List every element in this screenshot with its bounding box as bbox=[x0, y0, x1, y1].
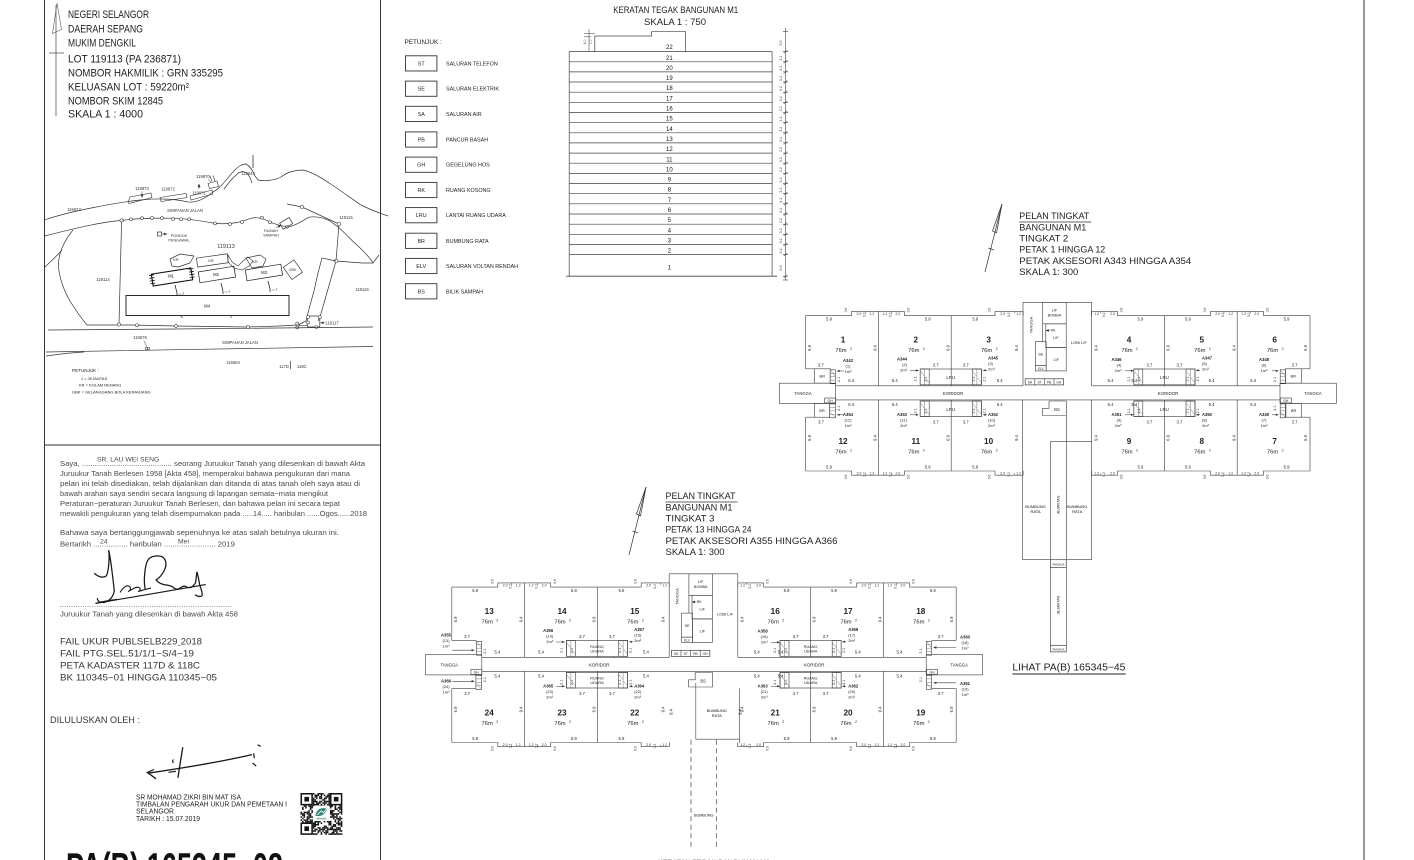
svg-text:24: 24 bbox=[485, 709, 495, 718]
svg-text:2.1: 2.1 bbox=[924, 408, 928, 413]
svg-text:5.9: 5.9 bbox=[618, 736, 624, 741]
svg-text:0.2: 0.2 bbox=[535, 744, 539, 749]
svg-text:2: 2 bbox=[855, 619, 857, 623]
svg-text:TINGKAT 3: TINGKAT 3 bbox=[666, 514, 715, 524]
svg-text:2: 2 bbox=[569, 619, 571, 623]
svg-text:3.7: 3.7 bbox=[933, 363, 939, 368]
svg-text:5.4: 5.4 bbox=[1108, 402, 1114, 407]
svg-text:5.9: 5.9 bbox=[972, 317, 978, 322]
svg-text:76m: 76m bbox=[768, 721, 779, 727]
svg-text:(18): (18) bbox=[961, 640, 969, 645]
svg-text:76m: 76m bbox=[840, 721, 851, 727]
svg-text:2m³: 2m³ bbox=[988, 423, 996, 428]
svg-text:2.1: 2.1 bbox=[1196, 408, 1200, 413]
svg-text:BR: BR bbox=[417, 239, 425, 245]
svg-text:SKALA 1: 300: SKALA 1: 300 bbox=[1019, 267, 1078, 277]
svg-text:LIF: LIF bbox=[1053, 336, 1059, 340]
svg-text:BUMBUNG RATA: BUMBUNG RATA bbox=[446, 239, 489, 245]
svg-text:Juruukur Tanah yang dilesen: Juruukur Tanah yang dilesenkan di bawah … bbox=[60, 610, 238, 619]
svg-text:TANGGA: TANGGA bbox=[1052, 647, 1064, 651]
svg-text:6.9: 6.9 bbox=[945, 434, 950, 440]
svg-text:0.2: 0.2 bbox=[893, 584, 897, 589]
svg-text:2.1: 2.1 bbox=[1186, 408, 1190, 413]
svg-text:J: J bbox=[228, 290, 230, 294]
svg-text:0.6: 0.6 bbox=[1203, 308, 1207, 313]
svg-text:1.2: 1.2 bbox=[662, 743, 667, 747]
svg-text:9.4: 9.4 bbox=[669, 708, 674, 714]
svg-text:5.9: 5.9 bbox=[571, 588, 577, 593]
svg-text:2.1: 2.1 bbox=[919, 648, 923, 653]
svg-text:3.7: 3.7 bbox=[793, 634, 799, 639]
svg-text:5: 5 bbox=[1200, 336, 1205, 345]
svg-text:2: 2 bbox=[1282, 449, 1284, 453]
svg-text:6.9: 6.9 bbox=[453, 706, 458, 712]
svg-text:1: 1 bbox=[841, 336, 846, 345]
svg-text:3.2: 3.2 bbox=[779, 208, 783, 213]
svg-text:3.2: 3.2 bbox=[779, 157, 783, 162]
svg-text:0.6: 0.6 bbox=[490, 746, 494, 751]
svg-text:5.4: 5.4 bbox=[538, 650, 544, 655]
svg-text:2.0: 2.0 bbox=[900, 583, 905, 587]
svg-text:7: 7 bbox=[1272, 437, 1277, 446]
svg-text:GH: GH bbox=[474, 670, 480, 674]
svg-text:119117: 119117 bbox=[325, 321, 339, 326]
svg-text:2: 2 bbox=[1136, 347, 1138, 351]
svg-text:2.1: 2.1 bbox=[560, 680, 564, 685]
svg-text:0.2: 0.2 bbox=[653, 584, 657, 589]
svg-text:A355: A355 bbox=[441, 633, 452, 638]
svg-text:2: 2 bbox=[923, 449, 925, 453]
svg-text:3.2: 3.2 bbox=[779, 147, 783, 152]
svg-text:2m³: 2m³ bbox=[1202, 367, 1210, 372]
svg-text:TANGGA: TANGGA bbox=[1304, 391, 1322, 396]
svg-text:0.2: 0.2 bbox=[509, 584, 513, 589]
svg-text:2.1: 2.1 bbox=[783, 680, 787, 685]
svg-text:5.9: 5.9 bbox=[831, 736, 837, 741]
svg-text:0.2: 0.2 bbox=[653, 744, 657, 749]
svg-text:RUANG: RUANG bbox=[804, 677, 818, 681]
svg-text:(20): (20) bbox=[848, 689, 856, 694]
svg-text:6.9: 6.9 bbox=[945, 344, 950, 350]
svg-text:JEJANTAS: JEJANTAS bbox=[1057, 495, 1061, 514]
svg-text:GH: GH bbox=[417, 163, 425, 169]
svg-text:A345: A345 bbox=[988, 356, 999, 361]
svg-text:1.2: 1.2 bbox=[1094, 472, 1099, 476]
svg-text:KR: KR bbox=[208, 259, 214, 263]
svg-text:3.7: 3.7 bbox=[938, 634, 944, 639]
svg-text:76m: 76m bbox=[835, 348, 846, 354]
svg-text:SALURAN TELEFON: SALURAN TELEFON bbox=[446, 61, 498, 67]
svg-text:(24): (24) bbox=[442, 684, 450, 689]
svg-text:RK: RK bbox=[417, 188, 425, 194]
svg-text:BS: BS bbox=[1054, 407, 1060, 412]
svg-text:1.2: 1.2 bbox=[1241, 312, 1246, 316]
svg-text:9.4: 9.4 bbox=[1014, 434, 1019, 440]
svg-text:M2: M2 bbox=[213, 272, 219, 277]
svg-text:3.7: 3.7 bbox=[1146, 363, 1152, 368]
svg-text:6: 6 bbox=[1272, 336, 1277, 345]
svg-text:1m³: 1m³ bbox=[845, 369, 853, 374]
svg-text:2.0: 2.0 bbox=[1215, 312, 1220, 316]
svg-text:A359: A359 bbox=[848, 627, 859, 632]
svg-text:20: 20 bbox=[843, 709, 853, 718]
svg-text:LOBI LIF: LOBI LIF bbox=[717, 612, 734, 617]
svg-text:3.7: 3.7 bbox=[933, 419, 939, 424]
svg-text:A354: A354 bbox=[843, 412, 854, 417]
svg-text:2.1: 2.1 bbox=[618, 648, 622, 653]
svg-text:119116: 119116 bbox=[355, 287, 369, 292]
svg-text:TANGGA: TANGGA bbox=[1029, 316, 1034, 333]
svg-text:0.2: 0.2 bbox=[862, 312, 866, 317]
svg-text:0.6: 0.6 bbox=[987, 308, 991, 313]
svg-text:PETAK AKSESORI A343 HINGGA: PETAK AKSESORI A343 HINGGA A354 bbox=[1019, 256, 1191, 266]
svg-text:5.4: 5.4 bbox=[494, 673, 500, 678]
svg-text:5.4: 5.4 bbox=[1131, 378, 1137, 383]
svg-text:2.0: 2.0 bbox=[646, 743, 651, 747]
svg-text:9.4: 9.4 bbox=[878, 616, 883, 622]
svg-text:3.7: 3.7 bbox=[609, 634, 615, 639]
svg-text:2.1: 2.1 bbox=[483, 677, 487, 682]
svg-text:A362: A362 bbox=[848, 684, 859, 689]
svg-text:2.1: 2.1 bbox=[982, 408, 986, 413]
svg-text:ELV: ELV bbox=[684, 639, 691, 643]
svg-text:LRU: LRU bbox=[946, 407, 955, 412]
svg-text:M4: M4 bbox=[204, 304, 210, 309]
svg-text:PB: PB bbox=[418, 138, 426, 144]
svg-text:LRU: LRU bbox=[1160, 407, 1169, 412]
svg-text:19: 19 bbox=[666, 76, 673, 82]
svg-text:1.2: 1.2 bbox=[662, 583, 667, 587]
svg-text:9.4: 9.4 bbox=[519, 706, 524, 712]
svg-text:9.4: 9.4 bbox=[1231, 344, 1236, 350]
svg-text:5.4: 5.4 bbox=[997, 378, 1003, 383]
svg-text:5.4: 5.4 bbox=[848, 402, 854, 407]
svg-text:A351: A351 bbox=[1111, 412, 1122, 417]
svg-text:5.4: 5.4 bbox=[643, 673, 649, 678]
svg-text:1m³: 1m³ bbox=[443, 690, 451, 695]
svg-text:2.1: 2.1 bbox=[982, 376, 986, 381]
svg-text:2: 2 bbox=[782, 720, 784, 724]
svg-text:119973: 119973 bbox=[135, 186, 149, 191]
svg-text:2.0: 2.0 bbox=[646, 583, 651, 587]
svg-text:118C: 118C bbox=[297, 364, 307, 369]
svg-text:MUKIM DENGKIL: MUKIM DENGKIL bbox=[68, 38, 136, 50]
svg-text:KERATAN TEGAK BANGUNAN M1: KERATAN TEGAK BANGUNAN M1 bbox=[613, 5, 738, 15]
svg-text:PETA KADASTER 117D & 118C: PETA KADASTER 117D & 118C bbox=[60, 660, 201, 670]
svg-text:2: 2 bbox=[782, 619, 784, 623]
svg-text:SE: SE bbox=[418, 87, 426, 93]
svg-text:119971: 119971 bbox=[192, 191, 206, 196]
svg-text:6.9: 6.9 bbox=[812, 706, 817, 712]
svg-text:5.4: 5.4 bbox=[754, 673, 760, 678]
svg-text:A360: A360 bbox=[960, 634, 971, 639]
svg-text:LIF: LIF bbox=[1052, 309, 1058, 313]
svg-text:3.2: 3.2 bbox=[779, 198, 783, 203]
svg-text:12: 12 bbox=[666, 147, 673, 153]
svg-text:(11): (11) bbox=[900, 418, 907, 423]
svg-text:RUMAH: RUMAH bbox=[264, 229, 278, 233]
svg-text:2.0: 2.0 bbox=[756, 743, 761, 747]
svg-text:(21): (21) bbox=[761, 689, 769, 694]
svg-text:2m³: 2m³ bbox=[761, 640, 769, 645]
svg-text:5.4: 5.4 bbox=[494, 650, 500, 655]
svg-text:GH: GH bbox=[828, 399, 834, 403]
svg-text:3.2: 3.2 bbox=[779, 106, 783, 111]
svg-text:3.2: 3.2 bbox=[779, 127, 783, 132]
svg-text:76m: 76m bbox=[768, 620, 779, 626]
svg-text:0.2: 0.2 bbox=[1102, 312, 1106, 317]
svg-text:2m³: 2m³ bbox=[988, 367, 996, 372]
svg-text:5.9: 5.9 bbox=[831, 588, 837, 593]
svg-text:TARIKH : 15.07.2019: TARIKH : 15.07.2019 bbox=[136, 814, 200, 823]
svg-text:5.4: 5.4 bbox=[778, 650, 784, 655]
svg-text:0.2: 0.2 bbox=[748, 584, 752, 589]
svg-text:0.2: 0.2 bbox=[1102, 472, 1106, 477]
svg-text:SR. LAU WEI SENG: SR. LAU WEI SENG bbox=[97, 457, 159, 464]
svg-text:2.1: 2.1 bbox=[1196, 376, 1200, 381]
svg-text:3.7: 3.7 bbox=[464, 634, 470, 639]
svg-text:119972: 119972 bbox=[161, 187, 175, 192]
svg-text:3.7: 3.7 bbox=[938, 691, 944, 696]
svg-text:A363: A363 bbox=[758, 684, 769, 689]
svg-text:0.6: 0.6 bbox=[490, 579, 494, 584]
svg-text:1.2: 1.2 bbox=[882, 312, 887, 316]
svg-text:A366: A366 bbox=[441, 679, 452, 684]
svg-text:UDARA: UDARA bbox=[804, 681, 818, 685]
svg-text:RATA: RATA bbox=[1072, 509, 1082, 514]
svg-text:6.9: 6.9 bbox=[1165, 344, 1170, 350]
svg-text:0.2: 0.2 bbox=[862, 472, 866, 477]
svg-text:5.9: 5.9 bbox=[1284, 317, 1290, 322]
svg-text:0.6: 0.6 bbox=[912, 746, 916, 751]
svg-text:2.0: 2.0 bbox=[503, 583, 508, 587]
svg-text:3.7: 3.7 bbox=[1146, 419, 1152, 424]
svg-text:(17): (17) bbox=[848, 633, 856, 638]
svg-text:FAIL UKUR PUBLSELB229ˍ2018: FAIL UKUR PUBLSELB229ˍ2018 bbox=[60, 637, 202, 647]
svg-text:2.0: 2.0 bbox=[861, 743, 866, 747]
svg-text:2.0: 2.0 bbox=[856, 472, 861, 476]
svg-text:A349: A349 bbox=[1259, 412, 1270, 417]
svg-text:A348: A348 bbox=[1259, 357, 1270, 362]
svg-text:2m³: 2m³ bbox=[546, 639, 554, 644]
svg-text:2: 2 bbox=[850, 449, 852, 453]
svg-text:0.6: 0.6 bbox=[553, 746, 557, 751]
svg-text:(2): (2) bbox=[902, 362, 908, 367]
svg-text:(23): (23) bbox=[546, 689, 554, 694]
svg-text:21: 21 bbox=[771, 709, 781, 718]
svg-text:2: 2 bbox=[928, 619, 930, 623]
svg-text:pelan ini telah disediakan,: pelan ini telah disediakan, telah dijala… bbox=[60, 479, 360, 488]
svg-text:BOMBA: BOMBA bbox=[694, 585, 708, 589]
svg-text:0.6: 0.6 bbox=[634, 579, 638, 584]
svg-text:PELAN TINGKAT: PELAN TINGKAT bbox=[666, 491, 736, 501]
svg-text:(13): (13) bbox=[442, 638, 450, 643]
svg-text:6.9: 6.9 bbox=[812, 616, 817, 622]
svg-text:5.4: 5.4 bbox=[848, 378, 854, 383]
svg-text:76m: 76m bbox=[908, 348, 919, 354]
svg-text:10: 10 bbox=[666, 167, 673, 173]
svg-text:9.4: 9.4 bbox=[660, 616, 665, 622]
svg-text:0.6: 0.6 bbox=[849, 579, 853, 584]
svg-text:Mei: Mei bbox=[178, 539, 189, 546]
svg-text:(19): (19) bbox=[961, 686, 969, 691]
svg-text:SIMPANAN JALAN: SIMPANAN JALAN bbox=[222, 340, 258, 345]
svg-text:TANGGA: TANGGA bbox=[675, 588, 680, 605]
svg-text:DAERAH SEPANG: DAERAH SEPANG bbox=[68, 23, 143, 35]
svg-text:0.2: 0.2 bbox=[867, 584, 871, 589]
svg-text:NEGERI SELANGOR: NEGERI SELANGOR bbox=[68, 9, 149, 21]
svg-text:NOMBOR HAKMILIK : GRN 335295: NOMBOR HAKMILIK : GRN 335295 bbox=[68, 68, 223, 80]
svg-text:SKALA 1 : 4000: SKALA 1 : 4000 bbox=[68, 109, 143, 121]
svg-text:3.2: 3.2 bbox=[779, 218, 783, 223]
svg-text:1m³: 1m³ bbox=[962, 692, 970, 697]
svg-text:15: 15 bbox=[630, 607, 640, 616]
svg-text:5.4: 5.4 bbox=[778, 673, 784, 678]
svg-text:PANCUR BASAH: PANCUR BASAH bbox=[446, 138, 488, 144]
svg-text:KORIDOR: KORIDOR bbox=[804, 662, 825, 667]
svg-text:LRU: LRU bbox=[946, 375, 955, 380]
svg-text:5.4: 5.4 bbox=[997, 402, 1003, 407]
svg-text:SAMPAH: SAMPAH bbox=[263, 234, 279, 238]
svg-text:3.2: 3.2 bbox=[779, 117, 783, 122]
svg-text:3.7: 3.7 bbox=[1292, 419, 1298, 424]
svg-text:1.2: 1.2 bbox=[874, 583, 879, 587]
svg-text:3.7: 3.7 bbox=[579, 691, 585, 696]
svg-text:M3: M3 bbox=[261, 270, 267, 275]
svg-text:2.1: 2.1 bbox=[972, 408, 976, 413]
svg-text:(8): (8) bbox=[1202, 418, 1208, 423]
svg-text:2.0: 2.0 bbox=[895, 312, 900, 316]
svg-text:2: 2 bbox=[996, 449, 998, 453]
svg-text:1.2: 1.2 bbox=[1228, 472, 1233, 476]
svg-text:UDARA: UDARA bbox=[590, 681, 604, 685]
svg-text:0.6: 0.6 bbox=[766, 746, 770, 751]
svg-text:0.2: 0.2 bbox=[867, 744, 871, 749]
svg-text:J = JEJANTAS: J = JEJANTAS bbox=[81, 376, 108, 381]
svg-text:5.4: 5.4 bbox=[896, 650, 902, 655]
svg-text:0.2: 0.2 bbox=[1247, 312, 1251, 317]
svg-text:3.7: 3.7 bbox=[609, 691, 615, 696]
svg-text:2.0: 2.0 bbox=[1110, 472, 1115, 476]
svg-text:3.7: 3.7 bbox=[1292, 363, 1298, 368]
svg-text:76m: 76m bbox=[1194, 348, 1205, 354]
svg-text:0.2: 0.2 bbox=[893, 744, 897, 749]
svg-text:76m: 76m bbox=[1121, 348, 1132, 354]
svg-text:115604: 115604 bbox=[226, 360, 240, 365]
svg-text:9.4: 9.4 bbox=[1231, 434, 1236, 440]
svg-text:BR: BR bbox=[819, 374, 825, 379]
svg-text:A356: A356 bbox=[543, 628, 554, 633]
svg-text:(5): (5) bbox=[1202, 361, 1208, 366]
svg-text:22: 22 bbox=[666, 45, 673, 51]
svg-text:11: 11 bbox=[666, 157, 673, 163]
svg-text:2: 2 bbox=[496, 619, 498, 623]
svg-text:TANGGA: TANGGA bbox=[951, 663, 969, 668]
svg-text:LANTAI RUANG UDARA: LANTAI RUANG UDARA bbox=[446, 213, 506, 219]
svg-text:1.2: 1.2 bbox=[869, 472, 874, 476]
svg-text:5.4: 5.4 bbox=[1209, 378, 1215, 383]
svg-text:115678: 115678 bbox=[133, 335, 147, 340]
svg-text:9.4: 9.4 bbox=[878, 706, 883, 712]
svg-text:RATA: RATA bbox=[712, 713, 722, 718]
svg-text:2: 2 bbox=[496, 720, 498, 724]
svg-text:6.9: 6.9 bbox=[1303, 434, 1308, 440]
svg-text:14: 14 bbox=[666, 127, 673, 133]
svg-text:2: 2 bbox=[914, 336, 919, 345]
svg-text:5.9: 5.9 bbox=[1185, 317, 1191, 322]
svg-text:3.7: 3.7 bbox=[823, 634, 829, 639]
svg-text:1.2: 1.2 bbox=[1228, 312, 1233, 316]
svg-text:A352: A352 bbox=[988, 412, 999, 417]
svg-text:9.4: 9.4 bbox=[873, 434, 878, 440]
svg-text:5.9: 5.9 bbox=[925, 465, 931, 470]
svg-text:5.4: 5.4 bbox=[855, 673, 861, 678]
svg-text:2.1: 2.1 bbox=[972, 376, 976, 381]
svg-text:2: 2 bbox=[923, 347, 925, 351]
svg-text:3.7: 3.7 bbox=[963, 419, 969, 424]
svg-text:3.2: 3.2 bbox=[779, 249, 783, 254]
svg-text:9.4: 9.4 bbox=[1093, 434, 1098, 440]
svg-text:3.2: 3.2 bbox=[779, 86, 783, 91]
svg-text:4: 4 bbox=[1127, 336, 1132, 345]
svg-text:5.9: 5.9 bbox=[784, 736, 790, 741]
svg-text:bawah arahan saya sendiri: bawah arahan saya sendiri secara langsun… bbox=[60, 489, 328, 498]
svg-text:LIF: LIF bbox=[1053, 358, 1059, 362]
svg-text:BR: BR bbox=[1291, 408, 1297, 413]
svg-text:2m³: 2m³ bbox=[900, 367, 908, 372]
svg-text:76m: 76m bbox=[1121, 450, 1132, 456]
svg-text:BANGUNAN M1: BANGUNAN M1 bbox=[666, 503, 733, 513]
svg-text:2: 2 bbox=[1136, 449, 1138, 453]
svg-text:GH: GH bbox=[929, 670, 935, 674]
svg-text:2.1: 2.1 bbox=[1186, 376, 1190, 381]
svg-text:3.2: 3.2 bbox=[779, 56, 783, 61]
svg-text:5.4: 5.4 bbox=[538, 673, 544, 678]
svg-text:6.8: 6.8 bbox=[779, 266, 783, 271]
svg-text:PA(B) 165345−08: PA(B) 165345−08 bbox=[66, 844, 283, 860]
svg-text:2.0: 2.0 bbox=[756, 583, 761, 587]
svg-text:3.7: 3.7 bbox=[1176, 363, 1182, 368]
svg-text:2m³: 2m³ bbox=[634, 638, 642, 643]
svg-text:3.2: 3.2 bbox=[779, 96, 783, 101]
svg-text:2: 2 bbox=[569, 720, 571, 724]
svg-text:LOT 119113 (PA 236871): LOT 119113 (PA 236871) bbox=[68, 54, 181, 66]
svg-text:A357: A357 bbox=[634, 627, 645, 632]
svg-text:5.9: 5.9 bbox=[930, 588, 936, 593]
svg-text:76m: 76m bbox=[981, 450, 992, 456]
svg-text:9.4: 9.4 bbox=[1093, 344, 1098, 350]
svg-text:1.2: 1.2 bbox=[516, 583, 521, 587]
svg-text:9.4: 9.4 bbox=[740, 616, 745, 622]
svg-text:1.2: 1.2 bbox=[516, 743, 521, 747]
svg-text:13: 13 bbox=[485, 607, 495, 616]
svg-text:20: 20 bbox=[666, 66, 673, 72]
svg-text:3.7: 3.7 bbox=[793, 691, 799, 696]
svg-text:1m³: 1m³ bbox=[845, 423, 853, 428]
svg-text:1.2: 1.2 bbox=[529, 583, 534, 587]
svg-text:6.9: 6.9 bbox=[592, 616, 597, 622]
svg-text:0.6: 0.6 bbox=[1119, 308, 1123, 313]
svg-text:RK: RK bbox=[697, 600, 703, 604]
svg-text:8: 8 bbox=[1200, 437, 1205, 446]
svg-text:9.4: 9.4 bbox=[1014, 344, 1019, 350]
svg-text:2.1: 2.1 bbox=[1273, 406, 1277, 411]
svg-text:5.9: 5.9 bbox=[826, 465, 832, 470]
svg-text:119115: 119115 bbox=[339, 215, 353, 220]
svg-text:4.0: 4.0 bbox=[583, 40, 587, 45]
svg-text:5.9: 5.9 bbox=[618, 588, 624, 593]
svg-text:5.9: 5.9 bbox=[571, 736, 577, 741]
